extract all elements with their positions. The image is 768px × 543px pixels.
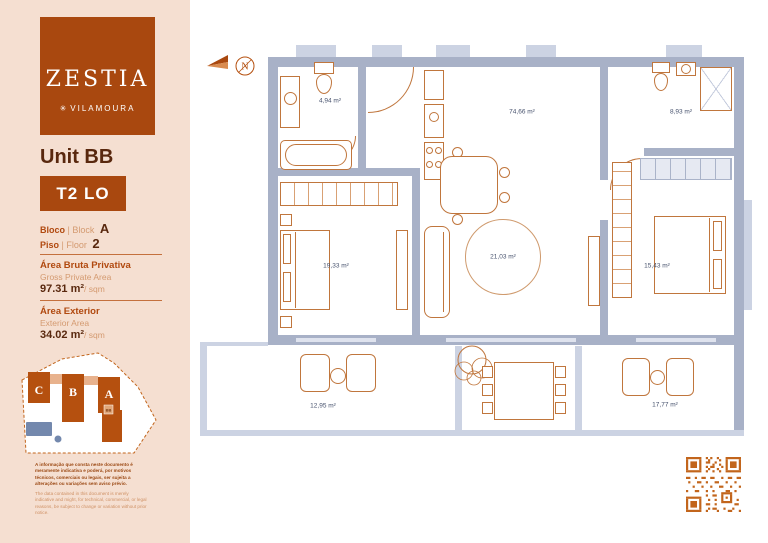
window-sill <box>436 45 470 57</box>
block-connector <box>84 376 98 385</box>
wardrobe <box>280 182 398 206</box>
terrace-chair <box>555 384 566 396</box>
terrace-edge <box>200 342 268 346</box>
floor-label-pt: Piso <box>40 240 59 250</box>
window-opening <box>636 338 716 342</box>
room-area-label-terrace1: 12,95 m² <box>310 403 336 410</box>
floor-value: 2 <box>92 236 99 251</box>
window-sill <box>526 45 556 57</box>
block-value: A <box>100 221 109 236</box>
block-a-label: A <box>105 387 114 401</box>
exterior-area-title-en: Exterior Area <box>40 318 89 328</box>
block-label-pt: Bloco <box>40 225 65 235</box>
divider <box>40 300 162 301</box>
dining-chair <box>499 192 510 203</box>
brand-name: ZESTIA <box>40 67 155 92</box>
bedroom-bench <box>396 230 408 310</box>
typology-badge: T2 LO <box>40 176 126 211</box>
block-a-lower-shape <box>102 410 122 442</box>
toilet-tank <box>652 62 670 73</box>
outdoor-chair <box>666 358 694 396</box>
wall-segment <box>268 57 744 67</box>
toilet-bowl <box>316 74 332 94</box>
toilet-tank <box>314 62 334 74</box>
nightstand <box>280 316 292 328</box>
unit-marker-label: BB <box>106 408 112 413</box>
disclaimer-en: The data contained in this document is m… <box>35 491 149 517</box>
pool-shape <box>26 422 52 436</box>
floor-plan: N <box>196 40 768 444</box>
window-opening <box>296 338 376 342</box>
pillow <box>283 234 291 264</box>
wall-segment <box>412 168 420 345</box>
room-area-label-rug: 21,03 m² <box>490 254 516 261</box>
wall-segment <box>644 148 744 156</box>
wall-segment <box>358 57 366 176</box>
pillow <box>283 272 291 302</box>
room-area-label-bathroom2: 8,93 m² <box>670 109 692 116</box>
dining-table <box>440 156 498 214</box>
gross-area-number: 97.31 m² <box>40 283 84 295</box>
terrace-chair <box>555 402 566 414</box>
room-area-label-living: 74,66 m² <box>509 109 535 116</box>
outdoor-chair <box>622 358 650 396</box>
terrace-divider <box>575 346 582 430</box>
disclaimer: A informação que consta neste documento … <box>35 462 149 516</box>
unit-title: Unit BB <box>40 146 113 169</box>
entry-door-arc <box>368 67 414 113</box>
room-area-label-terrace2: 17,77 m² <box>652 402 678 409</box>
block-row: Bloco | Block A <box>40 221 109 236</box>
north-compass-icon: N <box>204 52 258 80</box>
room-area-label-bathroom1: 4,94 m² <box>319 98 341 105</box>
burner <box>426 147 433 154</box>
sofa <box>424 226 450 318</box>
wall-segment <box>600 220 608 345</box>
fridge <box>424 70 444 100</box>
gross-area-title-pt: Área Bruta Privativa <box>40 260 131 271</box>
terrace-dining-table <box>494 362 554 420</box>
block-connector <box>50 374 62 384</box>
dining-chair <box>452 214 463 225</box>
wall-segment <box>734 57 744 430</box>
sofa-back-line <box>443 232 444 312</box>
zestia-logo: ZESTIA ✳VILAMOURA <box>40 17 155 135</box>
wardrobe <box>612 162 632 298</box>
room-area-label-bedroom2: 15,43 m² <box>644 263 670 270</box>
pool-dot <box>55 436 62 443</box>
nightstand <box>280 214 292 226</box>
divider <box>40 254 162 255</box>
bathtub-inner <box>285 144 347 166</box>
qr-code <box>686 457 741 512</box>
room-area-label-bedroom1: 19,33 m² <box>323 263 349 270</box>
exterior-area-unit: / sqm <box>84 330 105 340</box>
sink-basin <box>284 92 297 105</box>
tv-unit <box>588 236 600 306</box>
terrace-chair <box>482 366 493 378</box>
qr-modules <box>686 457 741 512</box>
terrace-edge <box>200 346 207 434</box>
floor-label-en: | Floor <box>62 240 87 250</box>
window-sill <box>372 45 402 57</box>
window-sill <box>666 45 702 57</box>
exterior-area-number: 34.02 m² <box>40 329 84 341</box>
bed-linen-line <box>709 218 710 292</box>
toilet-bowl <box>654 73 668 91</box>
block-c-label: C <box>35 383 44 397</box>
outdoor-side-table <box>650 370 665 385</box>
exterior-area-title-pt: Área Exterior <box>40 306 100 317</box>
shower <box>700 67 732 111</box>
site-plan-map: BB C B A <box>14 350 172 462</box>
window-sill <box>744 200 752 310</box>
terrace-chair <box>482 384 493 396</box>
pillow <box>713 259 722 289</box>
sink-basin <box>681 64 691 74</box>
dining-chair <box>499 167 510 178</box>
block-b-label: B <box>69 385 77 399</box>
block-label-en: | Block <box>68 225 95 235</box>
gross-area-unit: / sqm <box>84 284 105 294</box>
outdoor-side-table <box>330 368 346 384</box>
gross-area-title-en: Gross Private Area <box>40 272 111 282</box>
outdoor-chair <box>346 354 376 392</box>
burner <box>435 147 442 154</box>
compass-n-label: N <box>241 62 248 73</box>
pillow <box>713 221 722 251</box>
location-label: VILAMOURA <box>70 104 135 113</box>
gross-area-value: 97.31 m²/ sqm <box>40 283 105 295</box>
disclaimer-pt: A informação que consta neste documento … <box>35 462 149 488</box>
terrace-edge <box>200 430 744 436</box>
kitchen-sink-basin <box>429 112 439 122</box>
built-in-closet <box>640 158 732 180</box>
outdoor-chair <box>300 354 330 392</box>
burner <box>426 161 433 168</box>
terrace-chair <box>482 402 493 414</box>
wall-segment <box>600 57 608 180</box>
terrace-chair <box>555 366 566 378</box>
wall-segment <box>268 57 278 345</box>
exterior-area-value: 34.02 m²/ sqm <box>40 329 105 341</box>
brand-location: ✳VILAMOURA <box>40 104 155 113</box>
window-sill <box>296 45 336 57</box>
floor-row: Piso | Floor 2 <box>40 236 100 251</box>
flower-icon: ✳ <box>60 104 69 113</box>
sidebar: ZESTIA ✳VILAMOURA Unit BB T2 LO Bloco | … <box>0 0 190 543</box>
bed-linen-line <box>295 232 296 308</box>
